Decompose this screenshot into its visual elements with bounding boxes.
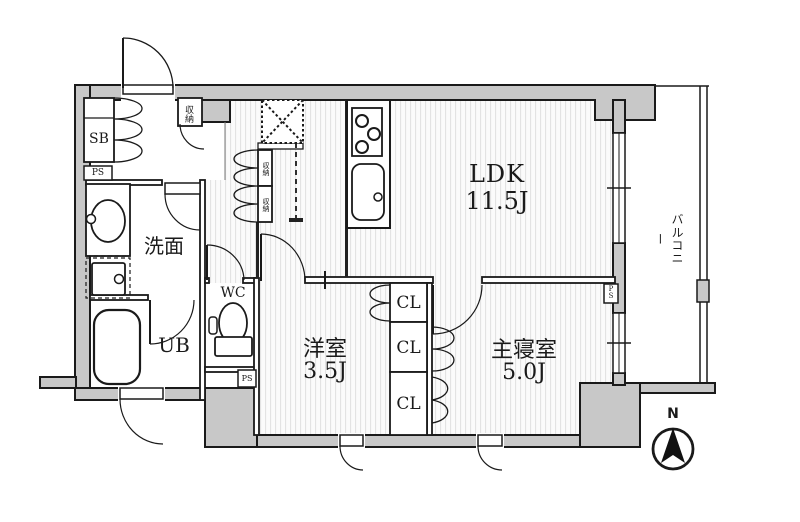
toilet-tank-icon: [215, 337, 252, 356]
counter-foot: [289, 218, 303, 222]
closet-3-label: CL: [390, 394, 427, 414]
kitchen: [347, 100, 390, 228]
wall-stub-left: [40, 377, 76, 388]
compass-north-label: N: [663, 406, 683, 422]
door-swing-arc: [165, 194, 200, 230]
closet-1-label: CL: [390, 293, 427, 313]
wall-right-upper: [613, 100, 625, 133]
door-swing-arc: [120, 399, 163, 444]
wall-step-block: [205, 388, 257, 447]
washing-machine: [86, 258, 130, 298]
pipe-space-2-label: PS: [238, 374, 256, 383]
hall-storage-1-label: 収納: [261, 154, 271, 184]
western-room-area-label: 3.5J: [263, 359, 387, 384]
faucet-icon: [87, 215, 96, 224]
window-bottom-1: [338, 433, 365, 470]
closet-2-label: CL: [390, 338, 427, 358]
kitchen-sink-icon: [352, 164, 384, 220]
entrance-door: [121, 38, 175, 102]
window-swing-arc: [478, 446, 502, 470]
wall-entrance-block: [200, 100, 230, 122]
door-swing-arc: [123, 38, 173, 88]
wall-bottom-right-block: [580, 383, 640, 447]
pipe-space-1-label: PS: [84, 168, 112, 178]
faucet-icon: [374, 193, 382, 201]
entrance-storage-label: 収納: [182, 102, 195, 126]
wall-balcony-bottom: [640, 383, 715, 393]
service-door-bottom-left: [118, 386, 165, 444]
washroom-label: 洗面: [122, 230, 206, 259]
balcony-label: バルコニー: [652, 207, 686, 271]
compass-icon: [653, 428, 693, 469]
floor-plan: LDK 11.5J 洋室 3.5J 主寝室 5.0J 洗面 UB WC SB C…: [0, 0, 800, 522]
washroom-door: [165, 183, 200, 230]
ldk-label: LDK: [437, 160, 557, 188]
toilet-lever-icon: [209, 317, 217, 334]
shoe-box-label: SB: [81, 131, 117, 147]
toilet-label: WC: [211, 285, 255, 301]
bathtub-icon: [94, 310, 140, 384]
window-swing-arc: [340, 446, 363, 470]
window-bottom-2: [476, 433, 504, 470]
ldk-area-label: 11.5J: [437, 187, 557, 215]
hall-storage-2-label: 収納: [261, 190, 271, 220]
refrigerator-space: [262, 100, 303, 143]
balcony-partition: [697, 280, 709, 302]
master-bedroom-area-label: 5.0J: [462, 360, 586, 385]
bath-label: UB: [146, 333, 202, 357]
pipe-space-3-label: PS: [607, 286, 615, 301]
wall-right-lower: [613, 373, 625, 385]
